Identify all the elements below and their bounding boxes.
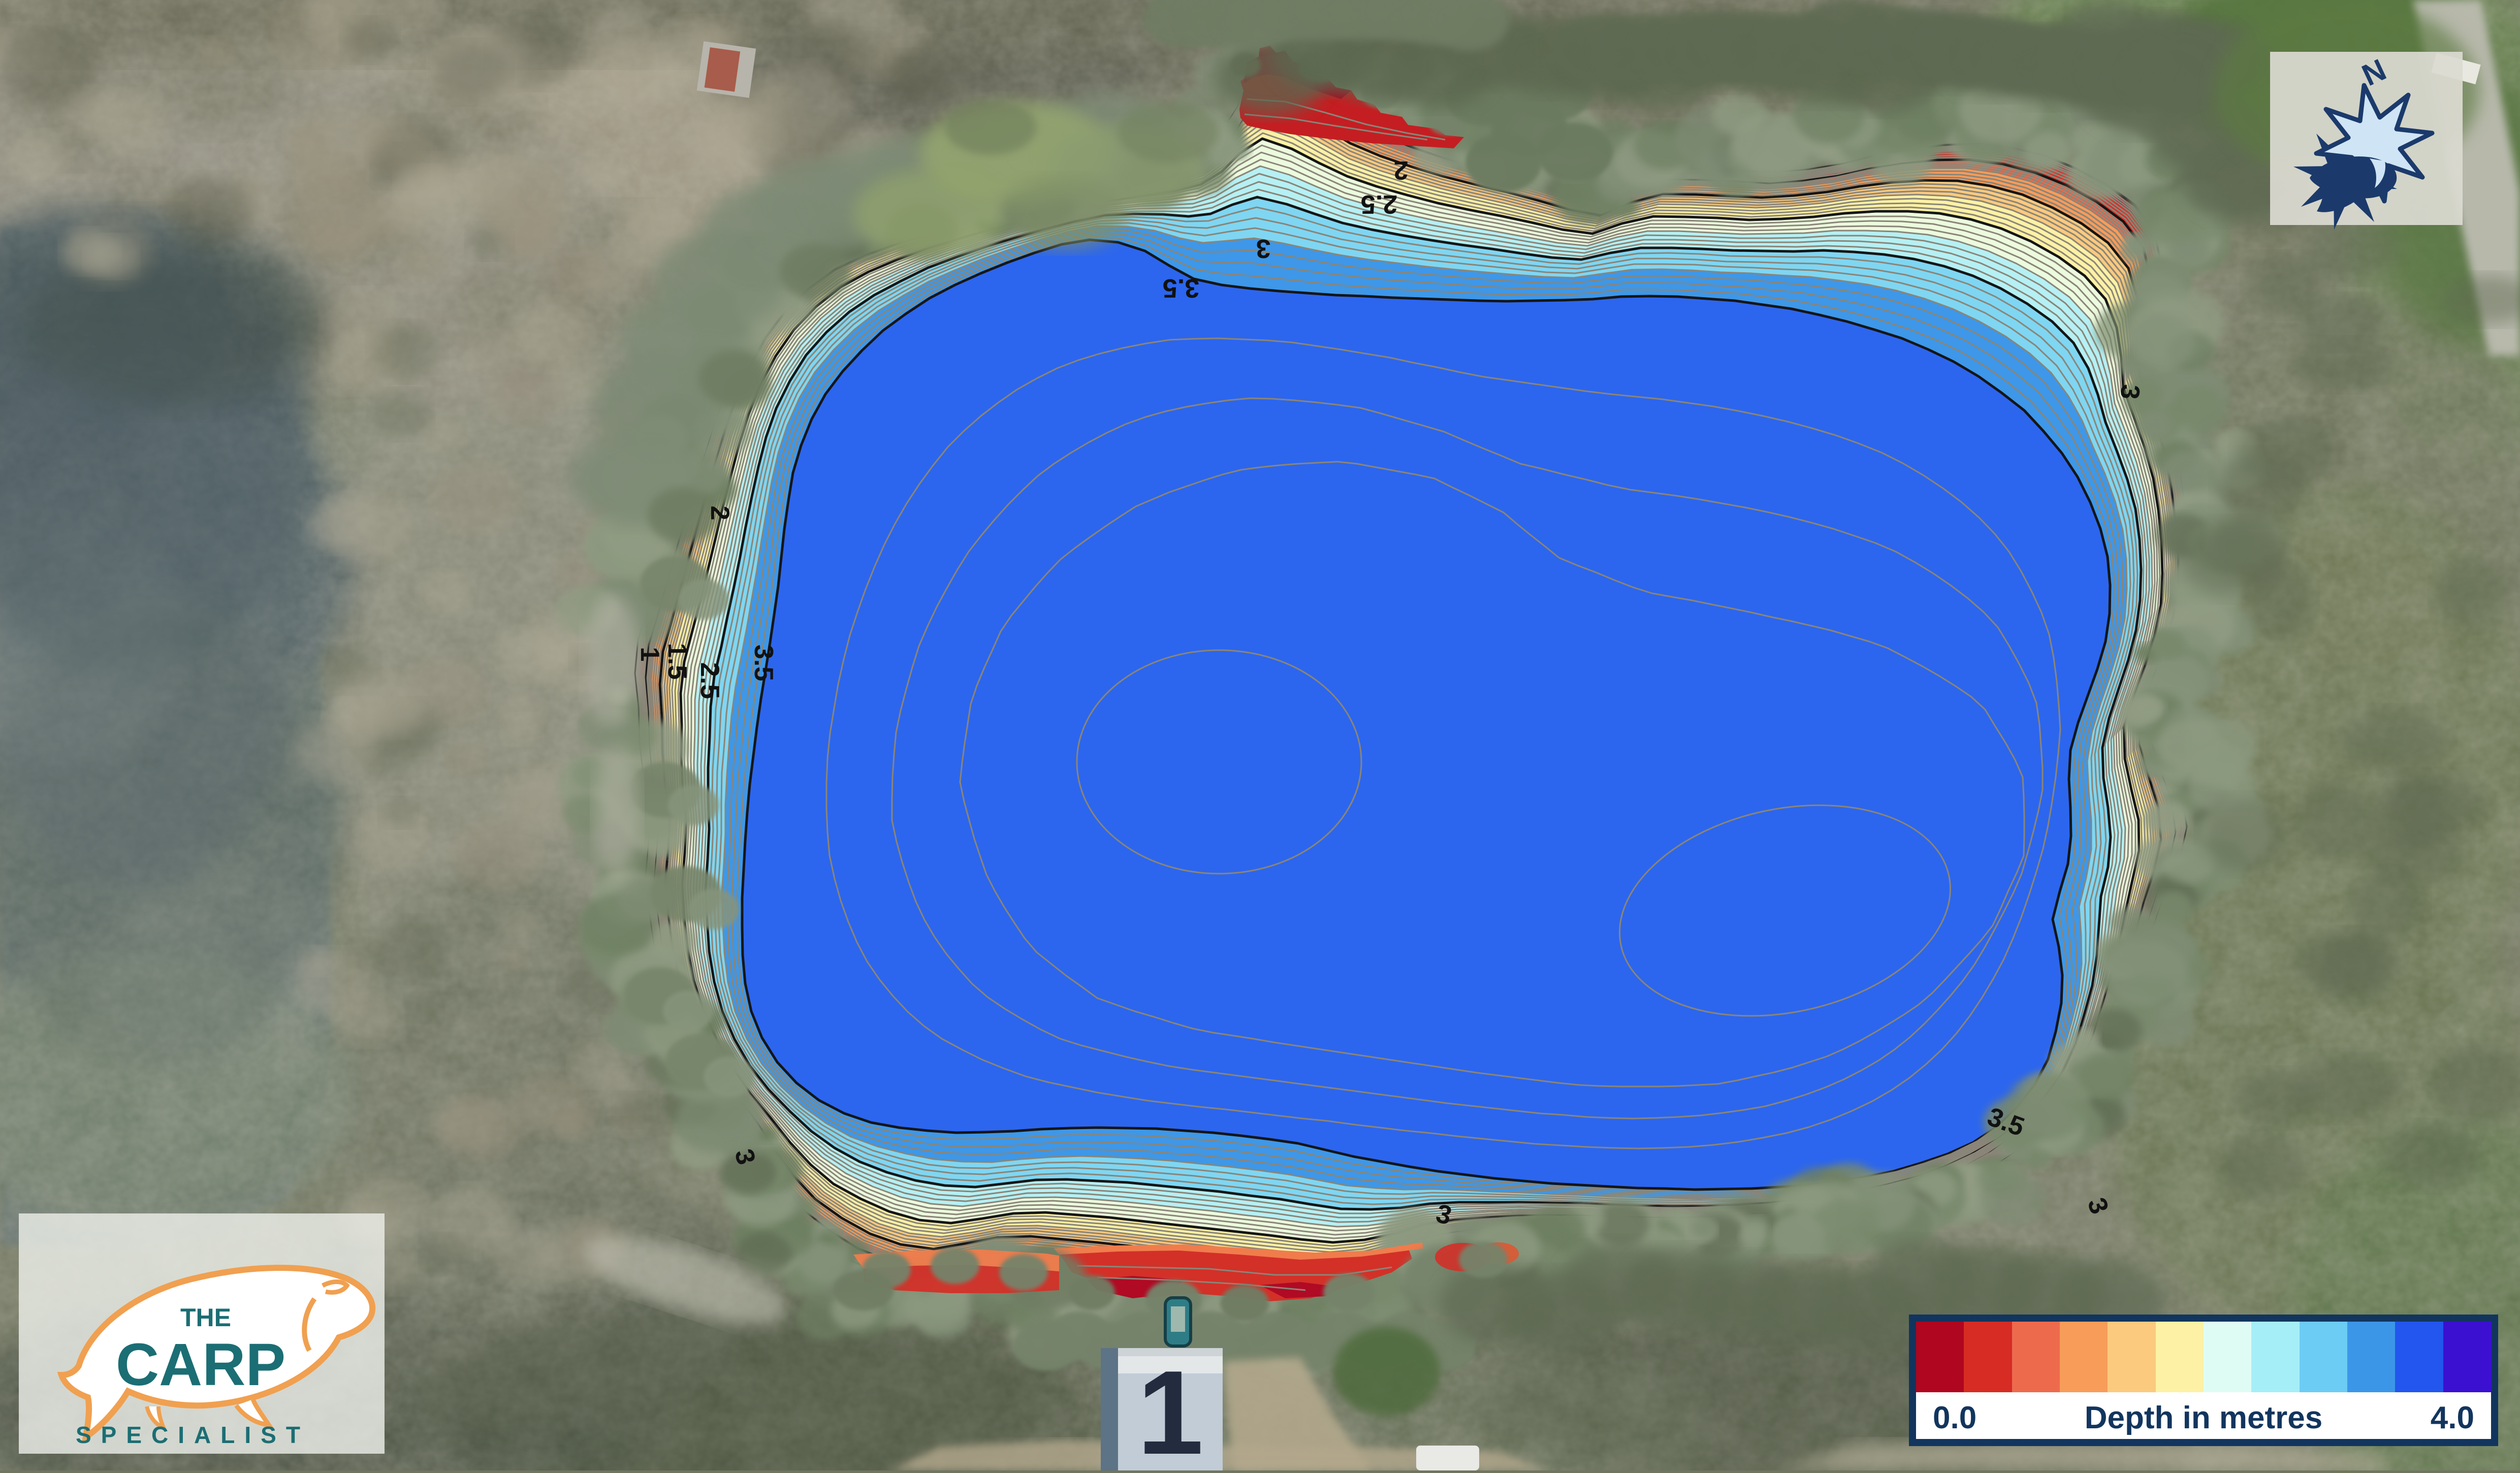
svg-text:3.5: 3.5	[749, 645, 778, 681]
svg-text:3: 3	[2115, 383, 2145, 401]
svg-text:3: 3	[1256, 234, 1271, 263]
svg-text:3.5: 3.5	[1163, 273, 1199, 303]
svg-text:1.5: 1.5	[662, 643, 692, 680]
svg-text:0.0: 0.0	[1933, 1400, 1976, 1435]
svg-text:THE: THE	[180, 1303, 231, 1332]
svg-text:1: 1	[635, 647, 664, 662]
svg-text:2: 2	[705, 506, 735, 521]
svg-text:2.5: 2.5	[1361, 189, 1397, 219]
svg-text:CARP: CARP	[116, 1331, 285, 1398]
svg-text:4.0: 4.0	[2431, 1400, 2474, 1435]
svg-text:Depth in metres: Depth in metres	[2085, 1400, 2323, 1435]
svg-text:2.5: 2.5	[695, 662, 724, 699]
svg-text:1: 1	[1137, 1346, 1204, 1470]
svg-text:2: 2	[1394, 155, 1409, 185]
svg-text:SPECIALIST: SPECIALIST	[76, 1422, 310, 1448]
